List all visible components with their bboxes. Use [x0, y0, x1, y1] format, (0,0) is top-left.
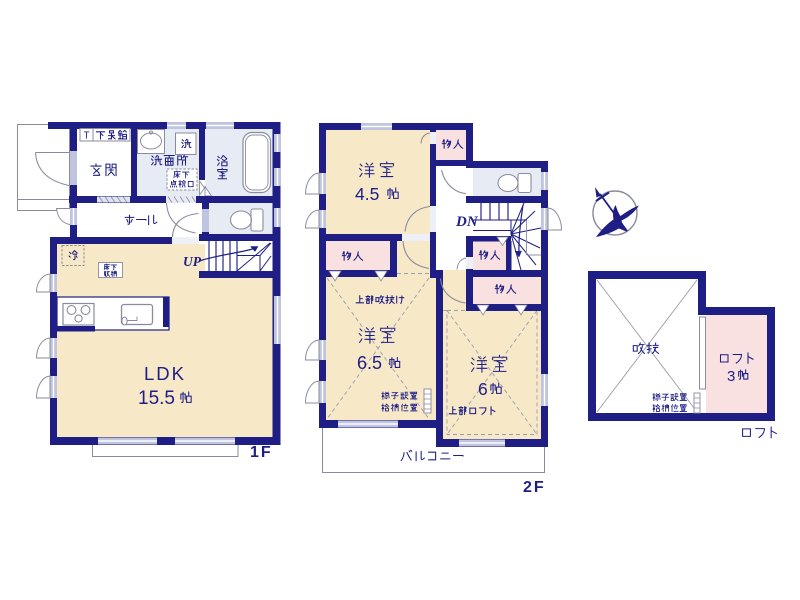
svg-text:UP: UP: [183, 254, 202, 269]
svg-text:DN: DN: [455, 214, 479, 230]
svg-text:2F: 2F: [523, 479, 546, 496]
svg-text:4.5: 4.5: [355, 184, 379, 204]
svg-text:15.5: 15.5: [138, 388, 175, 409]
svg-text:LDK: LDK: [144, 363, 186, 384]
svg-text:T: T: [84, 131, 90, 142]
svg-text:3: 3: [727, 368, 735, 385]
svg-text:1F: 1F: [250, 444, 273, 461]
svg-text:6.5: 6.5: [357, 353, 382, 373]
svg-text:6: 6: [478, 379, 488, 399]
